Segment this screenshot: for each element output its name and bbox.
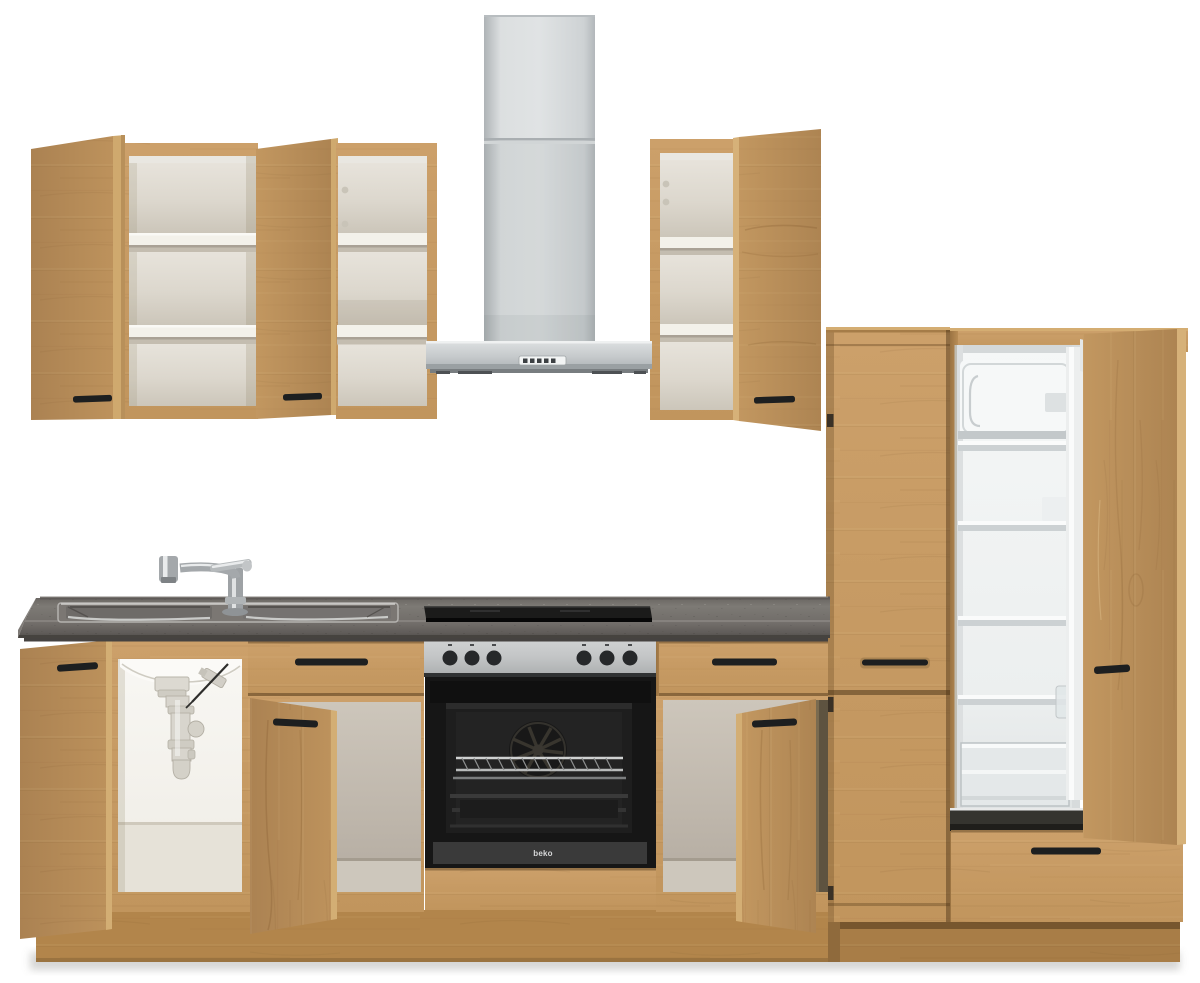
svg-text:beko: beko bbox=[533, 849, 552, 858]
